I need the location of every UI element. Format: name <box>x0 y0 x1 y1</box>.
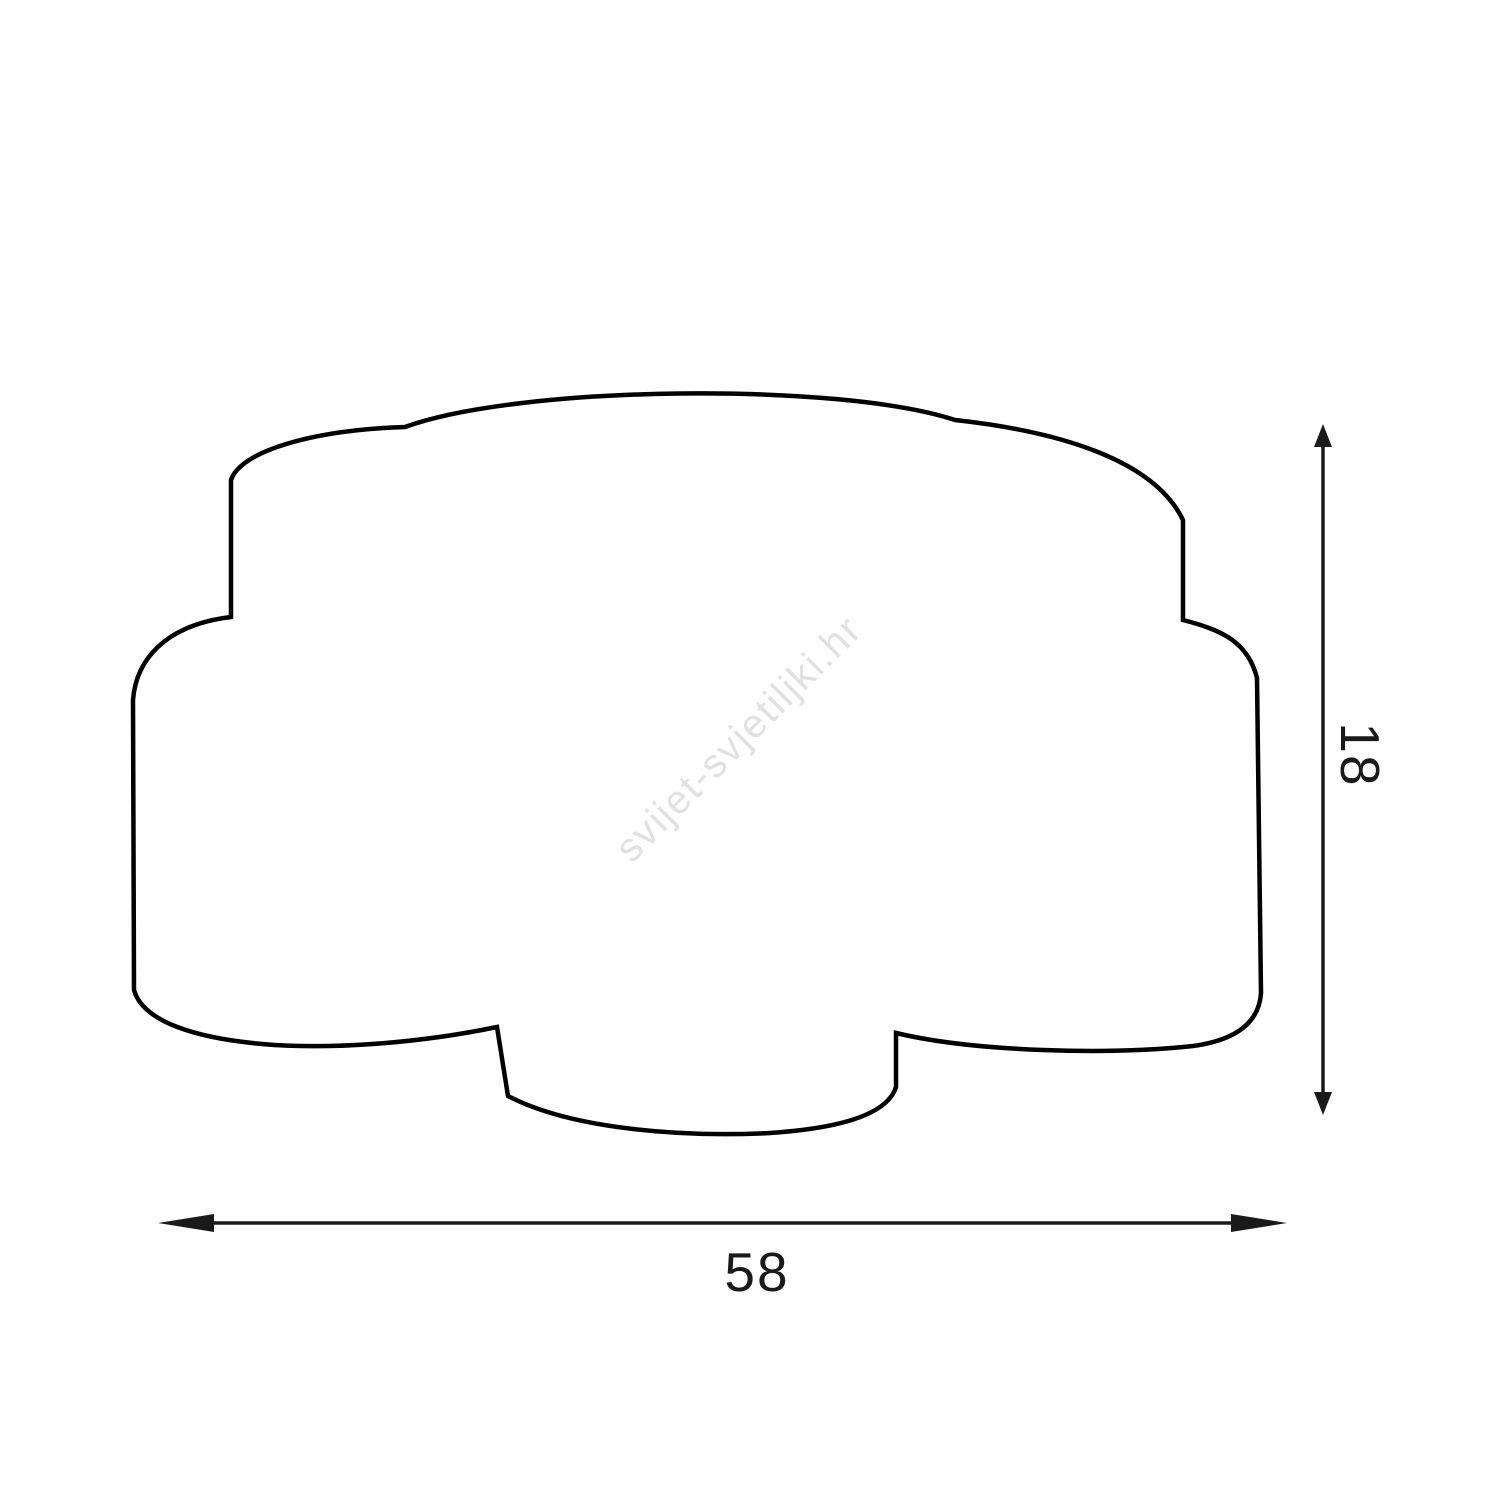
width-dimension: 58 <box>158 1214 1287 1303</box>
arrowhead-down-icon <box>1314 1092 1332 1115</box>
diagram-svg: 58 18 svijet-svjetiljki.hr <box>0 0 1500 1500</box>
height-dimension-label: 18 <box>1329 722 1391 787</box>
arrowhead-up-icon <box>1314 424 1332 447</box>
arrowhead-right-icon <box>1231 1214 1287 1232</box>
height-dimension: 18 <box>1314 424 1391 1115</box>
width-dimension-label: 58 <box>724 1241 789 1303</box>
arrowhead-left-icon <box>158 1214 214 1232</box>
dimension-drawing-canvas: 58 18 svijet-svjetiljki.hr <box>0 0 1500 1500</box>
